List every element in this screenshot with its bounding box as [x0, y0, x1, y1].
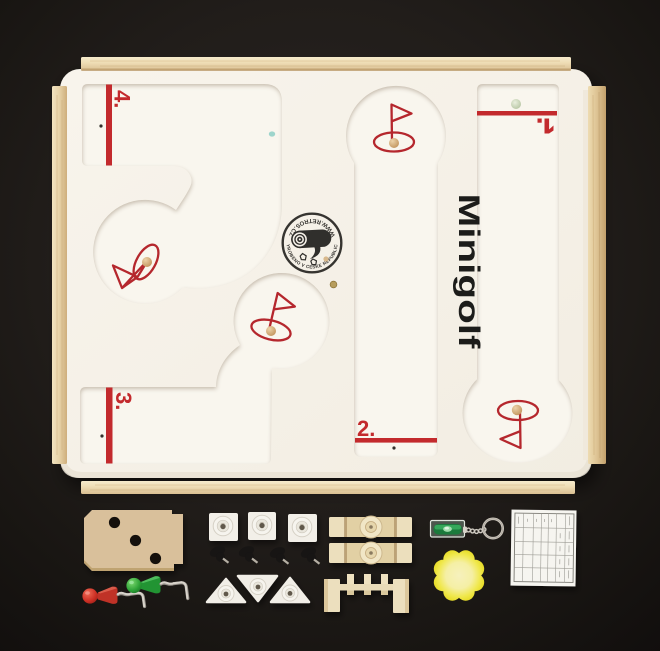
svg-text:4.: 4.	[110, 90, 135, 108]
svg-text:2.: 2.	[357, 416, 375, 441]
svg-text:3.: 3.	[111, 392, 136, 410]
svg-text:Minigolf: Minigolf	[452, 194, 485, 350]
